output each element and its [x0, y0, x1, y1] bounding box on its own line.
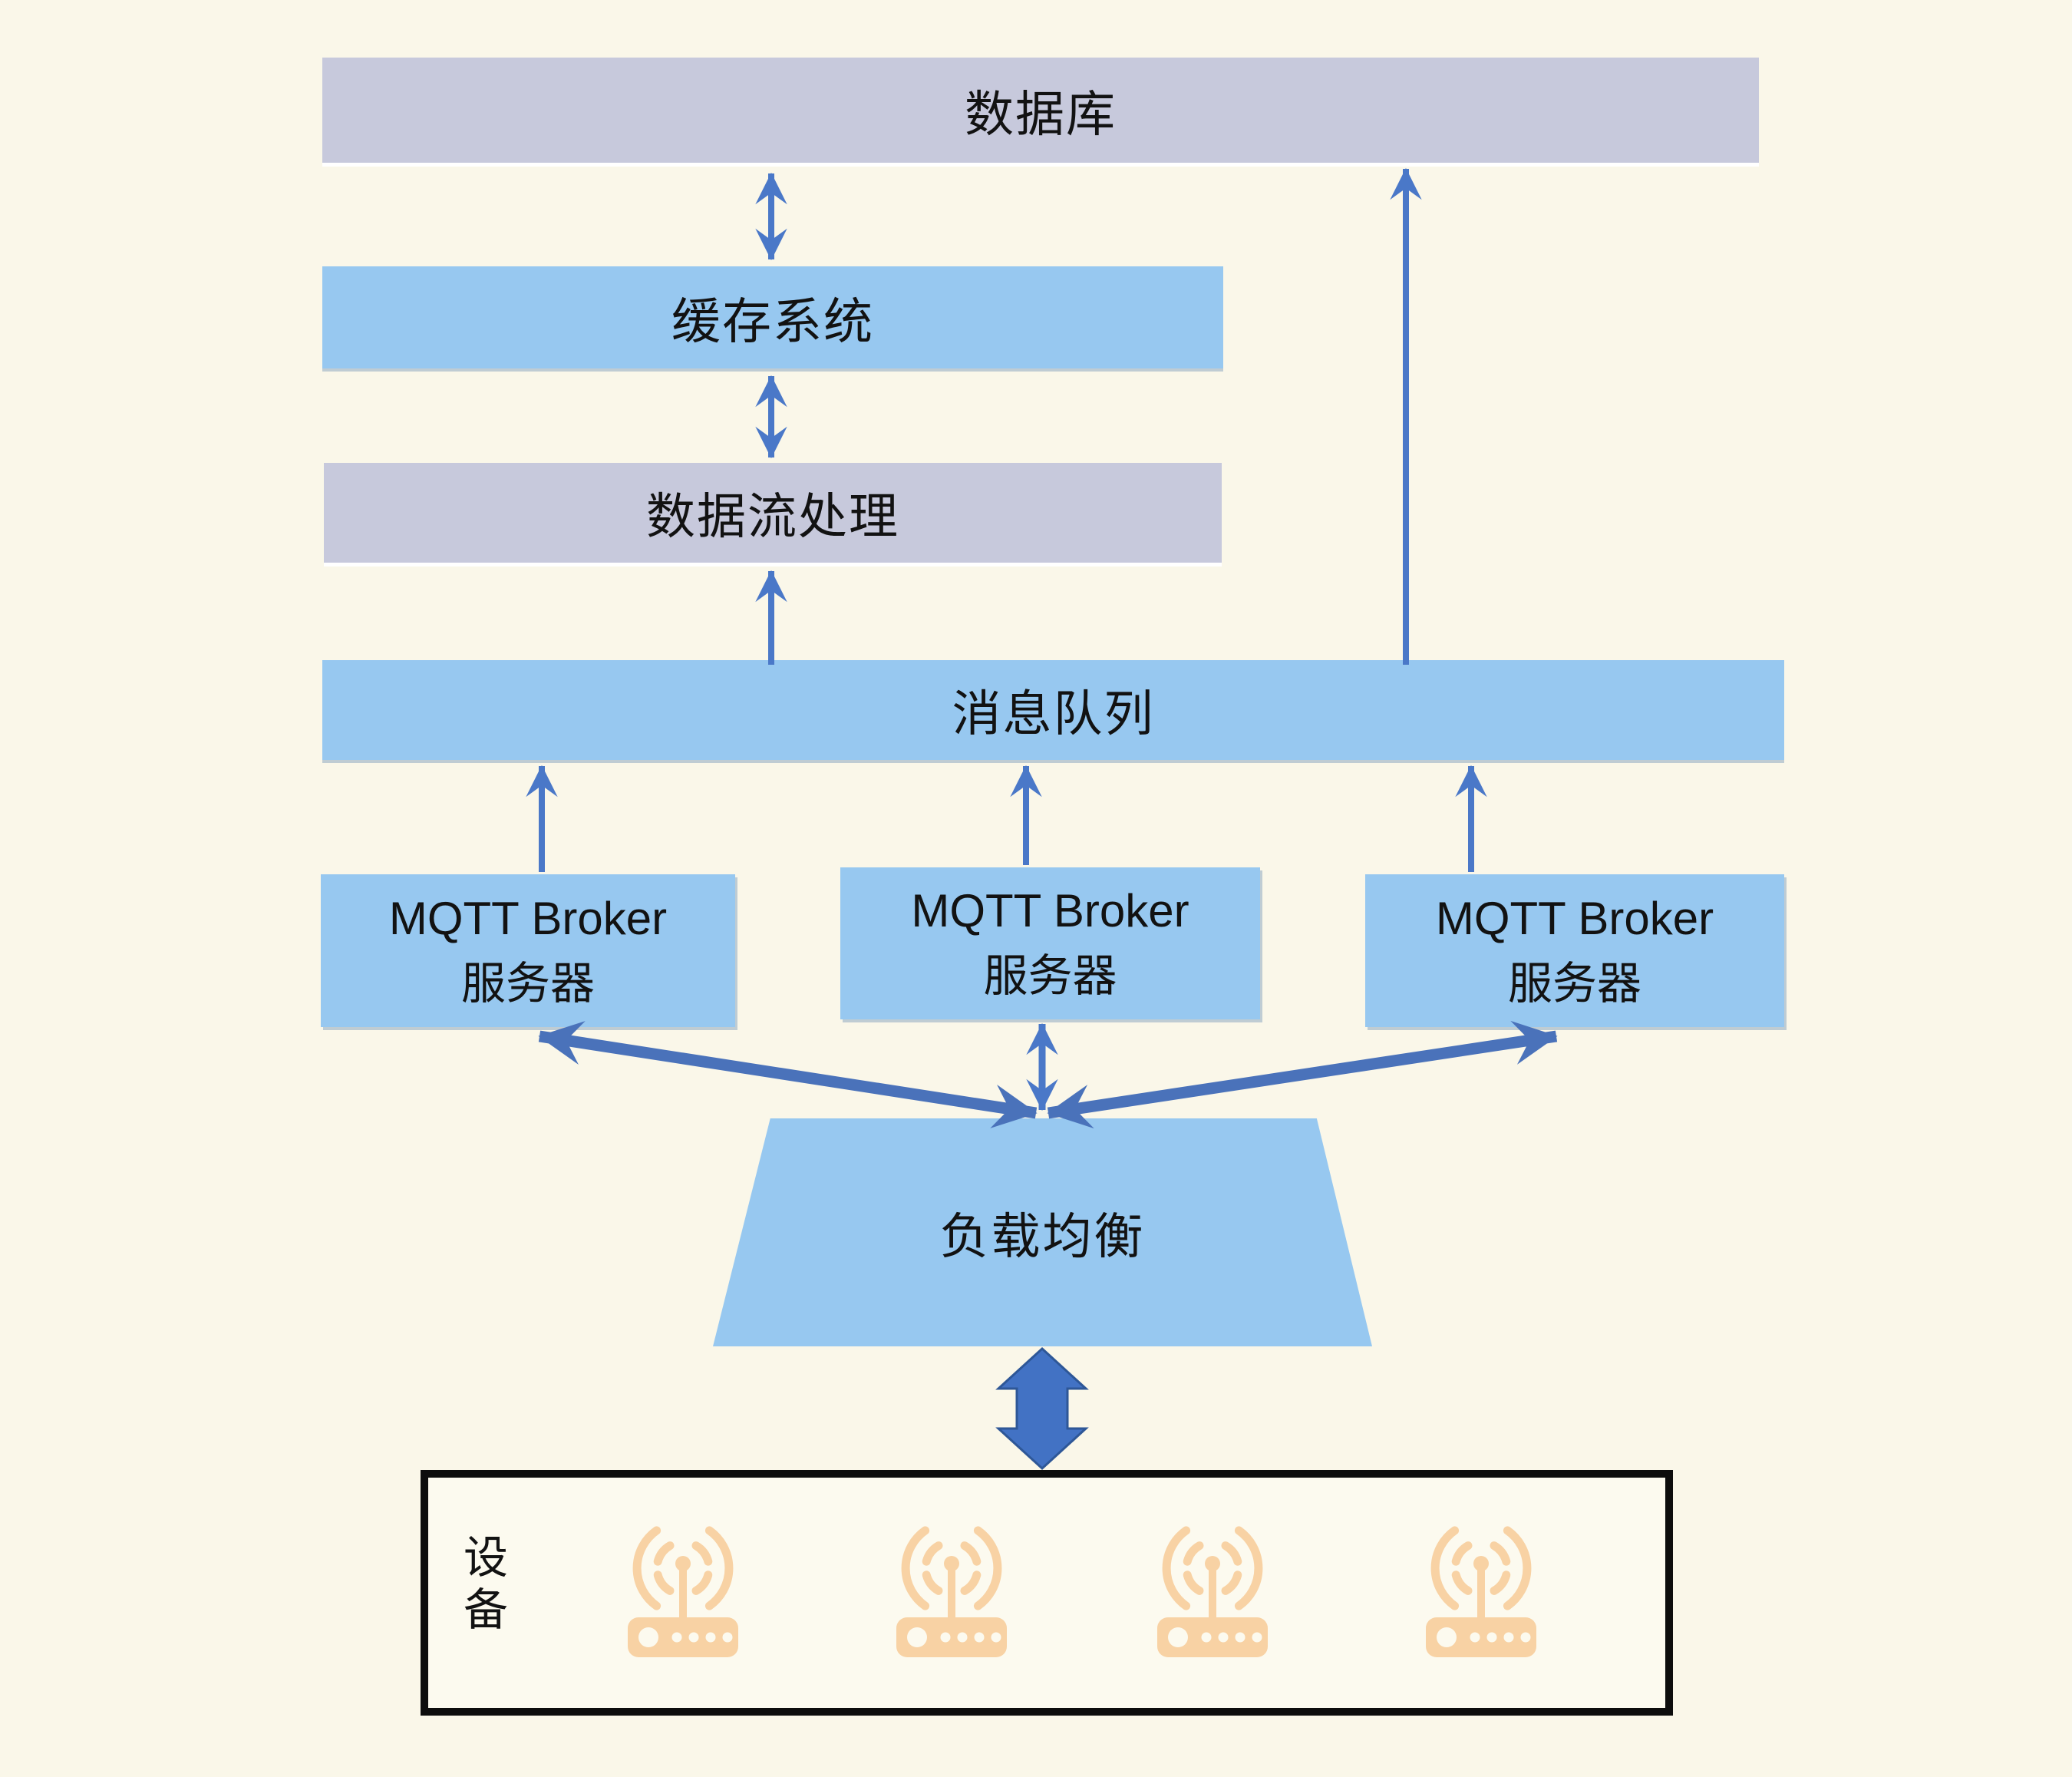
arrow-lb-broker-left: [539, 1036, 1036, 1113]
stream-processing-box: 数据流处理: [324, 463, 1222, 566]
wifi-router-icon: [1136, 1524, 1289, 1662]
mqtt-broker-left-line1: MQTT Broker: [389, 885, 667, 952]
mqtt-broker-left-line2: 服务器: [461, 952, 595, 1016]
wifi-router-icon: [1404, 1524, 1558, 1662]
mqtt-broker-box-right: MQTT Broker 服务器: [1365, 874, 1784, 1027]
stream-processing-label: 数据流处理: [646, 477, 899, 548]
mqtt-broker-box-middle: MQTT Broker 服务器: [840, 867, 1260, 1019]
message-queue-label: 消息队列: [952, 675, 1155, 745]
mqtt-broker-right-line2: 服务器: [1508, 952, 1641, 1016]
load-balancer-label: 负载均衡: [940, 1197, 1146, 1268]
cache-system-label: 缓存系统: [671, 282, 874, 353]
mqtt-broker-middle-line1: MQTT Broker: [911, 877, 1189, 944]
database-label: 数据库: [965, 75, 1117, 146]
load-balancer-trapezoid: 负载均衡: [713, 1118, 1372, 1346]
message-queue-bar: 消息队列: [322, 660, 1784, 760]
mqtt-broker-right-line1: MQTT Broker: [1436, 885, 1714, 952]
devices-label: 设备: [449, 1534, 513, 1638]
arrow-lb-devices-block: [998, 1349, 1086, 1468]
wifi-router-icon: [606, 1524, 760, 1662]
cache-system-box: 缓存系统: [322, 266, 1223, 368]
wifi-router-icon: [875, 1524, 1028, 1662]
database-bar: 数据库: [322, 58, 1759, 167]
architecture-diagram: 数据库 缓存系统 数据流处理 消息队列 MQTT Broker 服务器 MQTT…: [0, 0, 2072, 1777]
arrow-lb-broker-right: [1048, 1036, 1556, 1113]
mqtt-broker-box-left: MQTT Broker 服务器: [321, 874, 735, 1027]
mqtt-broker-middle-line2: 服务器: [983, 944, 1117, 1009]
